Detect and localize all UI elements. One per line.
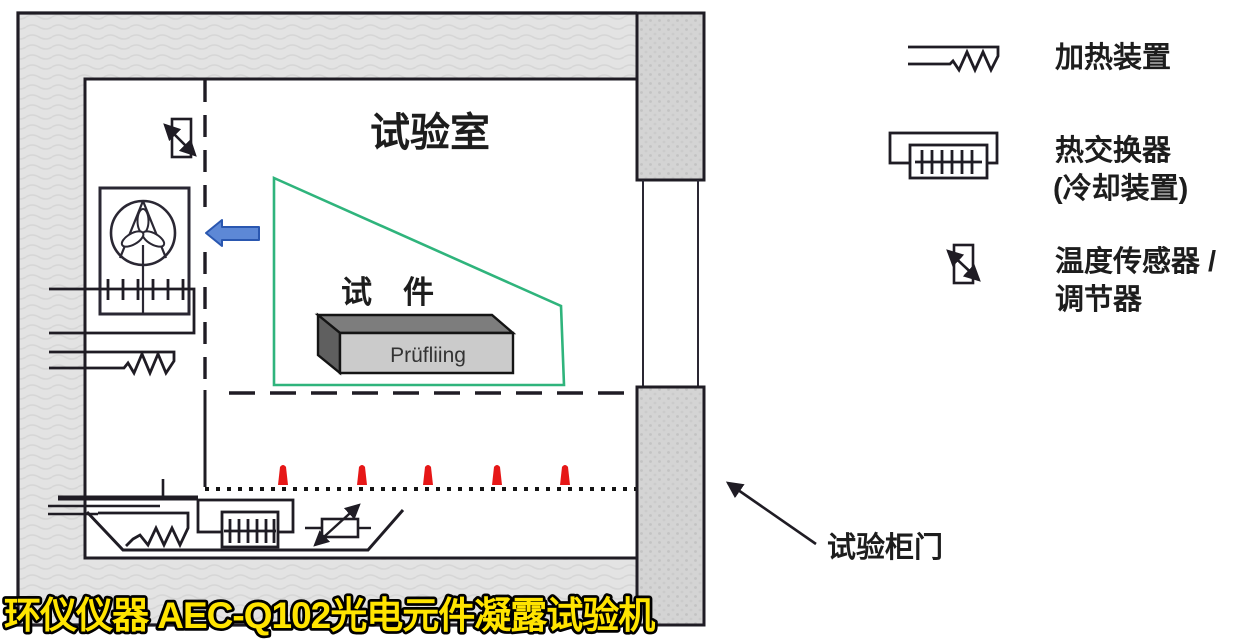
specimen-box-label: Prüfliing: [390, 344, 466, 367]
condensation-mark: [423, 465, 433, 485]
condensation-marks: [278, 465, 570, 485]
banner-text: 环仪仪器 AEC-Q102光电元件凝露试验机: [4, 595, 655, 636]
tank-heat-exchanger-icon: [198, 500, 293, 547]
door-bottom-block: [637, 387, 704, 625]
test-cabinet-door: [637, 13, 704, 625]
legend-temperature-sensor-label: 温度传感器 /: [1055, 245, 1216, 278]
condensation-mark: [278, 465, 288, 485]
airflow-arrow-icon: [206, 220, 259, 246]
legend-heater-label: 加热装置: [1055, 41, 1171, 74]
screenshot-root: Prüfliing 试验室 试 件: [0, 0, 1240, 639]
condensation-mark: [357, 465, 367, 485]
chamber-room-label: 试验室: [370, 111, 490, 155]
door-callout-label: 试验柜门: [827, 530, 943, 564]
door-top-block: [637, 13, 704, 180]
tank-temperature-sensor-icon: [305, 505, 371, 545]
legend-heat-exchanger-sublabel: (冷却装置): [1053, 172, 1188, 205]
legend-temperature-sensor-icon: [948, 245, 979, 283]
condensation-mark: [492, 465, 502, 485]
legend: 加热装置 热交换器 (冷却装置) 温度传感器 / 调节器: [890, 41, 1216, 316]
specimen-box-top-face: [318, 315, 513, 333]
condensation-mark: [560, 465, 570, 485]
legend-heater-icon: [908, 47, 998, 70]
temperature-sensor-icon: [165, 119, 195, 157]
fan-icon: [100, 188, 189, 314]
door-window: [643, 180, 698, 387]
tank-heater-icon: [98, 513, 188, 546]
legend-temperature-sensor-sublabel: 调节器: [1055, 283, 1143, 316]
door-callout-arrow: [728, 483, 816, 544]
door-callout: 试验柜门: [728, 483, 943, 564]
specimen-label: 试 件: [341, 275, 434, 310]
legend-heat-exchanger-label: 热交换器: [1055, 133, 1172, 167]
legend-heat-exchanger-icon: [890, 133, 997, 178]
